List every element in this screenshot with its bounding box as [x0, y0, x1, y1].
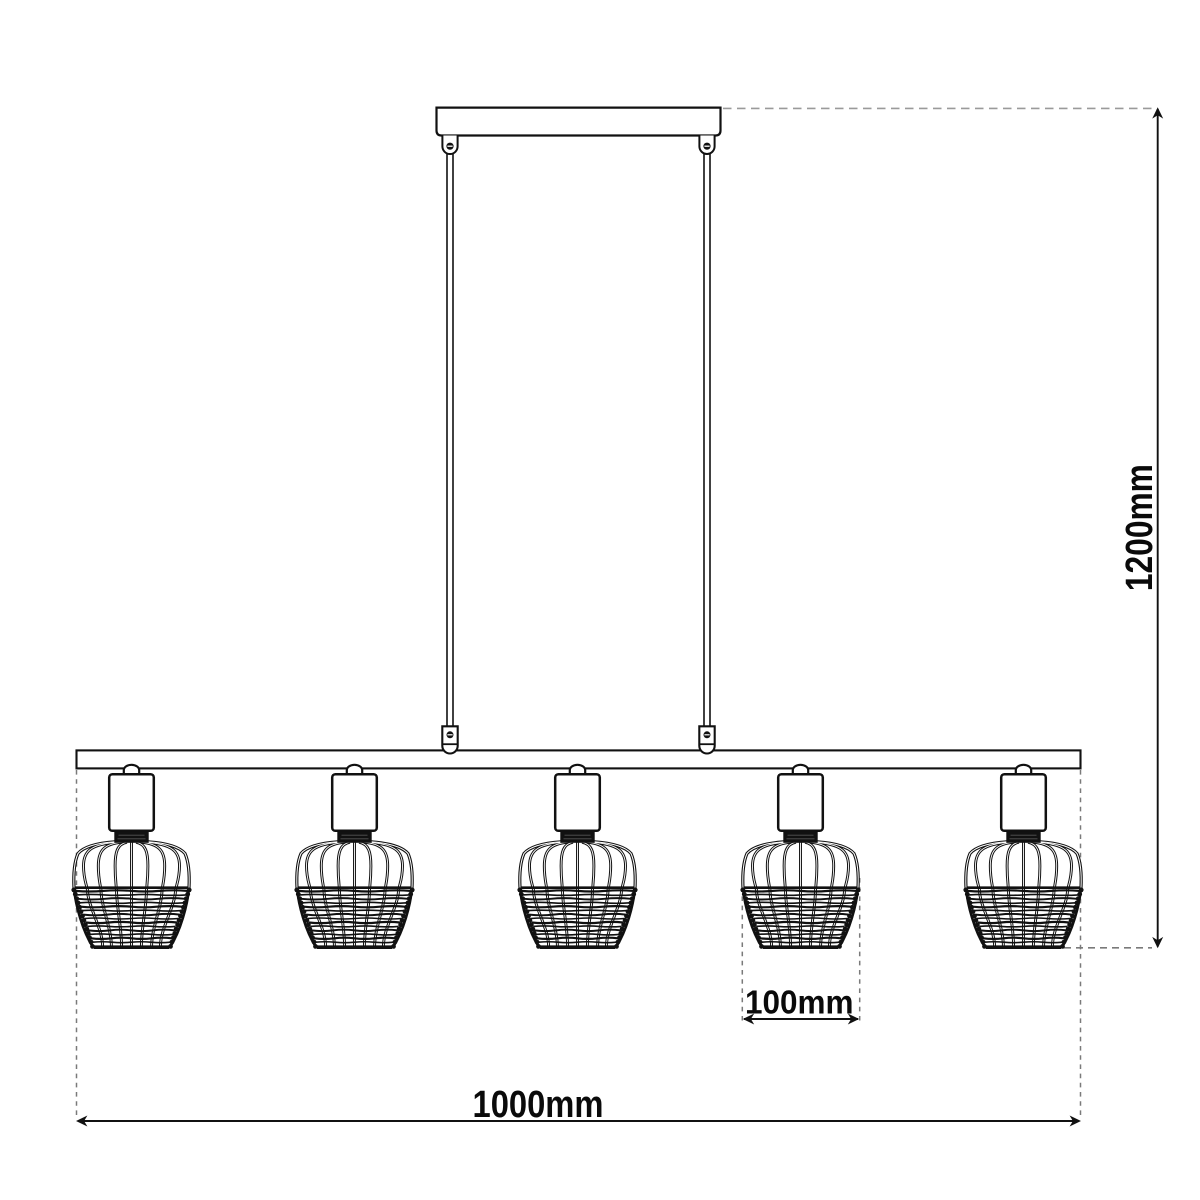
svg-text:1200mm: 1200mm	[1119, 464, 1161, 591]
svg-text:1000mm: 1000mm	[473, 1084, 604, 1126]
svg-text:100mm: 100mm	[745, 984, 854, 1021]
